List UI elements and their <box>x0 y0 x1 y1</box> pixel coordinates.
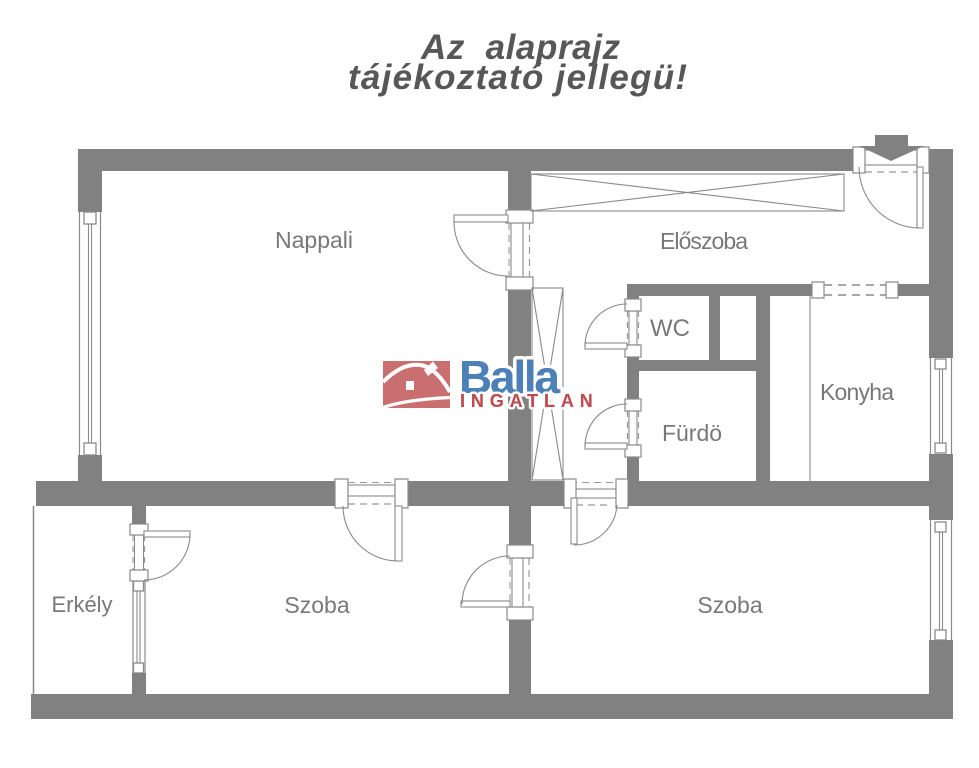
svg-text:Erkély: Erkély <box>51 592 112 617</box>
svg-text:WC: WC <box>650 315 690 342</box>
svg-text:INGATLAN: INGATLAN <box>460 391 596 411</box>
svg-text:tájékoztató jellegü!: tájékoztató jellegü! <box>348 58 687 97</box>
svg-text:Fürdö: Fürdö <box>662 420 722 446</box>
svg-text:Nappali: Nappali <box>275 227 353 253</box>
svg-text:Előszoba: Előszoba <box>660 228 748 254</box>
svg-text:Szoba: Szoba <box>697 592 762 618</box>
svg-text:Konyha: Konyha <box>820 379 894 405</box>
svg-text:Szoba: Szoba <box>284 592 349 618</box>
